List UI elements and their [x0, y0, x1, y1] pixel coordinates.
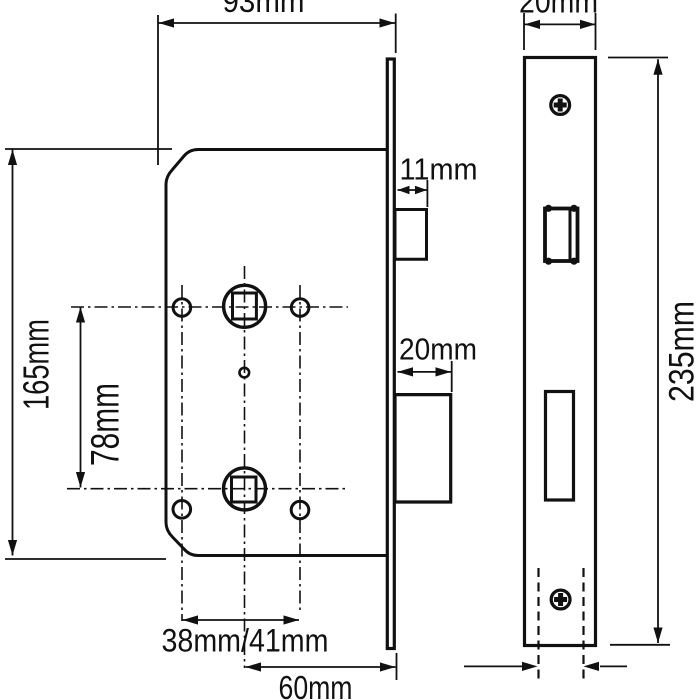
svg-text:93mm: 93mm — [223, 0, 305, 19]
svg-text:78mm: 78mm — [84, 383, 128, 466]
svg-text:60mm: 60mm — [279, 669, 353, 700]
svg-text:20mm: 20mm — [519, 0, 598, 20]
svg-text:165mm: 165mm — [16, 319, 57, 410]
svg-text:38mm/41mm: 38mm/41mm — [162, 623, 329, 659]
svg-text:20mm: 20mm — [399, 332, 477, 367]
svg-text:235mm: 235mm — [663, 301, 700, 402]
svg-text:11mm: 11mm — [400, 151, 478, 186]
